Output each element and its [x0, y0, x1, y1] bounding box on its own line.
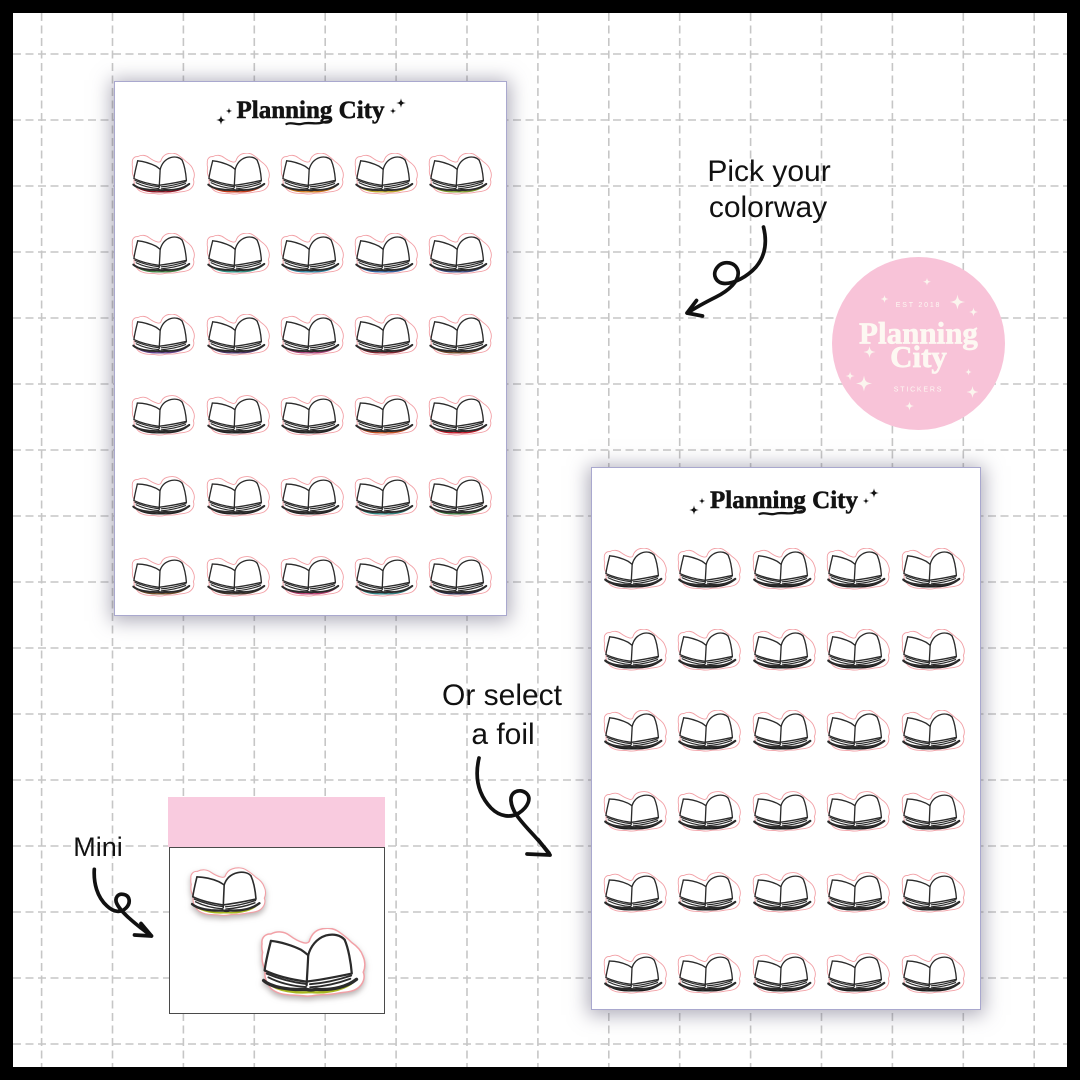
svg-text:EST 2018: EST 2018: [895, 302, 940, 309]
svg-text:City: City: [890, 339, 947, 374]
svg-text:STICKERS: STICKERS: [893, 387, 942, 394]
